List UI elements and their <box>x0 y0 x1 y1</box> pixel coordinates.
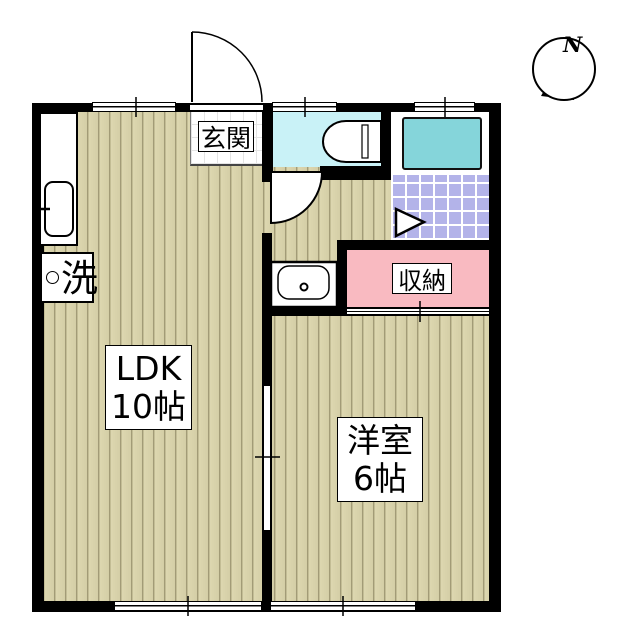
storage-label: 収納 <box>392 263 452 294</box>
western-room-area: 6帖 <box>353 460 407 498</box>
ldk-room-name: LDK <box>116 350 181 388</box>
ldk-room-label: LDK 10帖 <box>105 345 192 430</box>
entrance-door-swing-icon <box>192 32 262 102</box>
western-room-label: 洋室 6帖 <box>337 417 423 502</box>
bath-door-icon <box>396 209 424 236</box>
washbasin-icon <box>271 262 337 307</box>
entrance-label: 玄関 <box>198 121 254 152</box>
western-room-name: 洋室 <box>347 422 413 460</box>
toilet-door-swing-icon <box>271 172 322 223</box>
compass-north-label: N <box>563 32 582 57</box>
ldk-room-area: 10帖 <box>111 388 186 426</box>
fixtures-overlay <box>0 0 640 640</box>
toilet-icon <box>323 121 381 162</box>
floor-plan: 洗 <box>0 0 640 640</box>
